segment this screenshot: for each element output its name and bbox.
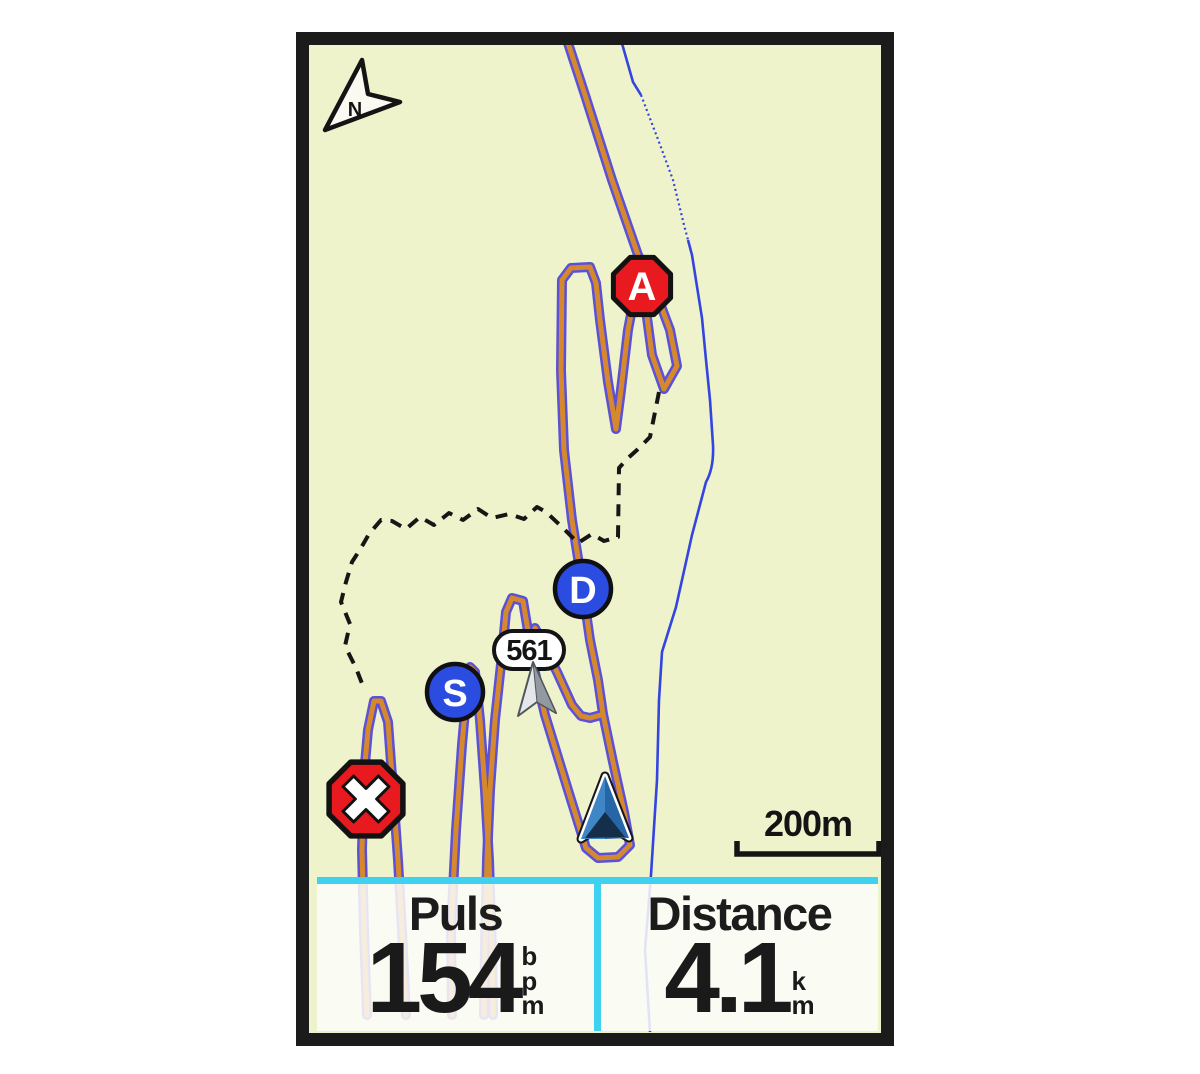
data-field-heart-rate[interactable]: Puls 154 b p m — [317, 884, 594, 1031]
course-point-a-label: A — [628, 265, 657, 309]
north-arrow-label: N — [348, 99, 362, 121]
heart-rate-value: 154 — [367, 937, 519, 1020]
course-start-label: S — [442, 673, 467, 715]
course-start-marker: S — [427, 664, 483, 720]
screenshot-canvas: 561 S D A — [0, 0, 1200, 1074]
distance-unit: k m — [791, 969, 814, 1020]
course-end-x-marker — [329, 762, 403, 836]
field-divider-line — [594, 884, 601, 1031]
data-field-bar: Puls 154 b p m Distance 4.1 — [317, 877, 878, 1031]
data-field-distance[interactable]: Distance 4.1 k m — [601, 884, 878, 1031]
course-point-d-marker: D — [555, 561, 611, 617]
heart-rate-unit: b p m — [521, 944, 544, 1020]
course-point-a-marker: A — [613, 257, 670, 314]
waypoint-561-label: 561 — [506, 635, 552, 667]
waypoint-561-marker: 561 — [494, 631, 564, 669]
distance-value: 4.1 — [664, 937, 788, 1020]
device-screen: 561 S D A — [296, 32, 894, 1046]
course-point-d-label: D — [569, 570, 596, 612]
map-scale-label: 200m — [764, 803, 852, 844]
field-top-accent-line — [317, 877, 878, 884]
